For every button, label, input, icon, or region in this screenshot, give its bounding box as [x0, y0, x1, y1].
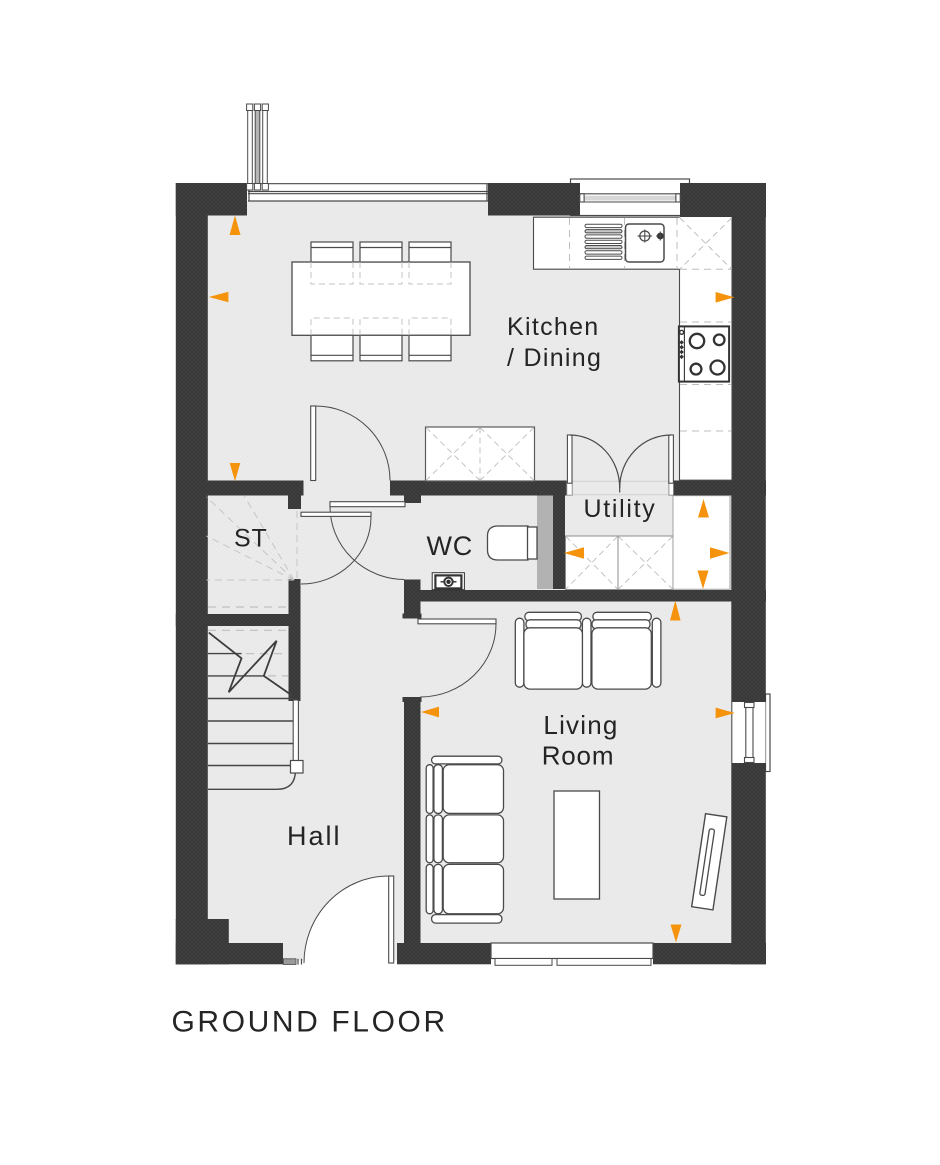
svg-text:GROUND FLOOR: GROUND FLOOR [172, 1006, 448, 1039]
svg-text:Hall: Hall [287, 821, 342, 851]
svg-text:ST: ST [234, 525, 268, 553]
svg-text:Living: Living [543, 710, 618, 740]
svg-text:WC: WC [427, 531, 474, 561]
svg-text:Room: Room [542, 741, 615, 771]
svg-text:Utility: Utility [584, 495, 657, 523]
svg-text:/ Dining: / Dining [507, 344, 602, 372]
svg-text:Kitchen: Kitchen [507, 313, 600, 341]
